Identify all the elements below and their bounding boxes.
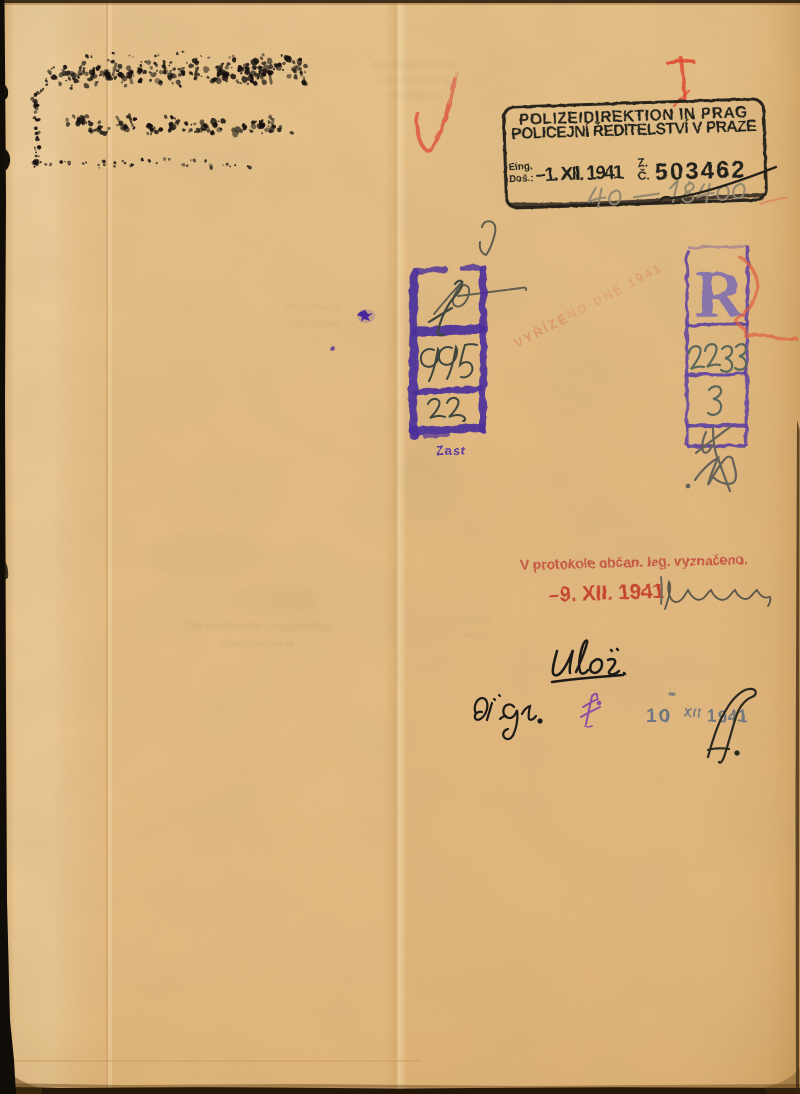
svg-text:gnudlemnA rebü: gnudlemnA rebü (379, 75, 452, 86)
svg-text:Eing.: Eing. (508, 161, 533, 173)
svg-text:gnugitätseB: gnugitätseB (388, 90, 441, 101)
svg-text:A-velotiploteirk: A-velotiploteirk (221, 638, 294, 650)
svg-text:gnuniehcseB: gnuniehcseB (285, 302, 343, 313)
svg-text:Doš.:: Doš.: (509, 173, 534, 185)
svg-text:–9. XII. 1941: –9. XII. 1941 (548, 580, 665, 607)
svg-text:iezilopstaatS ehcsiehcst eiD: iezilopstaatS ehcsiehcst eiD (183, 619, 333, 633)
svg-text:galhcs: galhcs (464, 616, 493, 627)
svg-text:–1. XII. 1941: –1. XII. 1941 (535, 162, 624, 186)
svg-text:tiekgirögeh: tiekgirögeh (290, 318, 339, 329)
svg-text:Č.: Č. (637, 167, 649, 182)
svg-text:Zast: Zast (436, 443, 466, 458)
svg-text:-naztie: -naztie (463, 630, 493, 641)
svg-text:10: 10 (646, 705, 672, 727)
svg-text:nehcieznnekrE red: nehcieznnekrE red (373, 60, 456, 71)
svg-text:XII: XII (683, 706, 702, 720)
